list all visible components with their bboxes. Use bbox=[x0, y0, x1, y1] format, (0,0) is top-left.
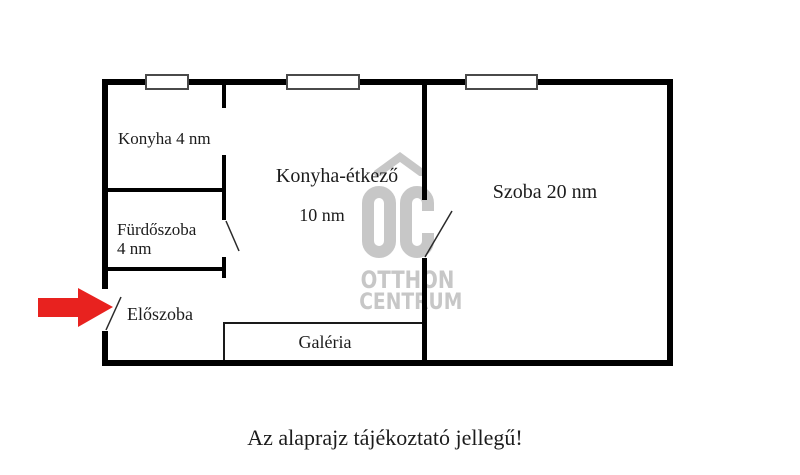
entrance-arrow-icon bbox=[0, 0, 800, 475]
floorplan-canvas: OTTHON CENTRUM Galéria Konyha 4 nm Fürdő… bbox=[0, 0, 800, 475]
